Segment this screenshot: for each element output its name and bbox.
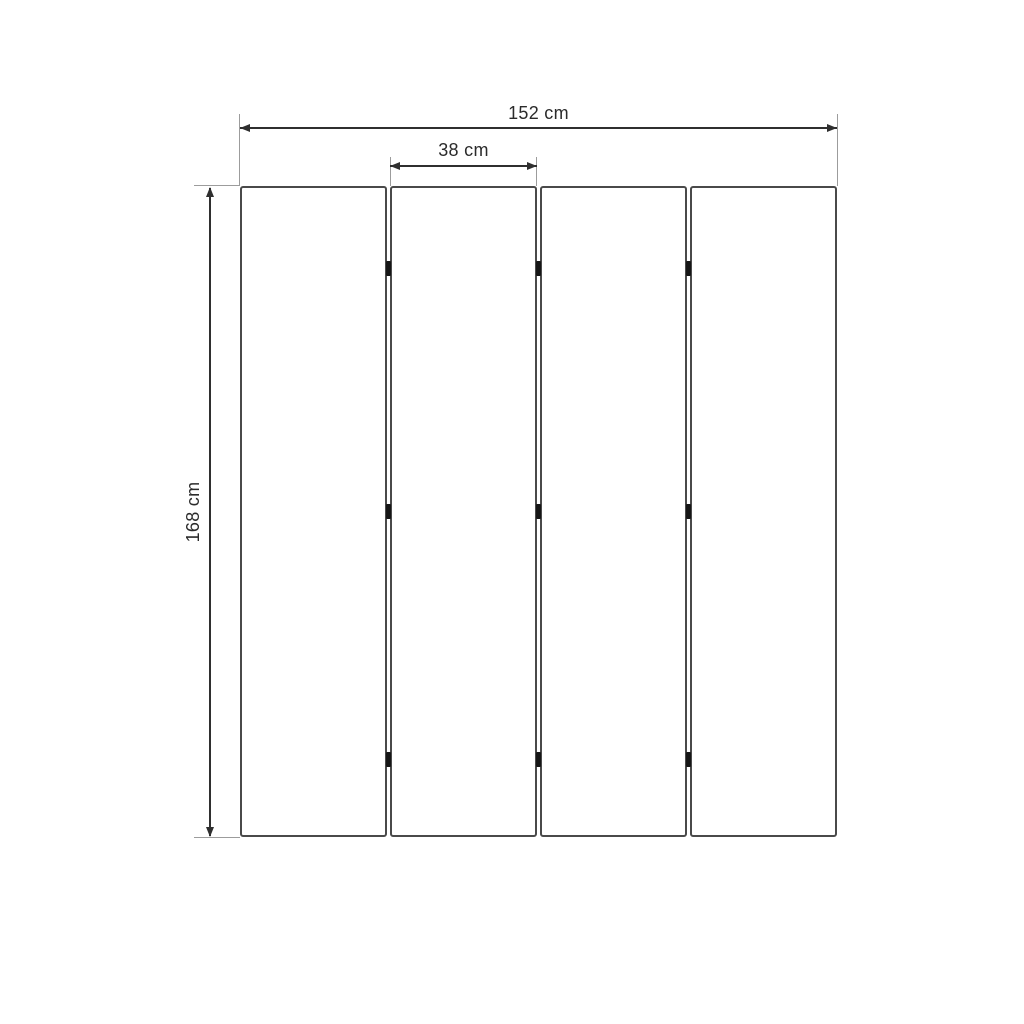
dimension-line-total-width <box>240 127 837 129</box>
hinge-joint3-bottom <box>686 752 691 767</box>
height-label: 168 cm <box>184 472 202 552</box>
hinge-joint3-middle <box>686 504 691 519</box>
hinge-joint3-top <box>686 261 691 276</box>
hinge-joint2-top <box>536 261 541 276</box>
dimension-line-height <box>209 188 211 836</box>
total-width-label: 152 cm <box>240 104 837 122</box>
extension-line-height-bottom <box>194 837 240 838</box>
hinge-joint2-middle <box>536 504 541 519</box>
hinge-joint2-bottom <box>536 752 541 767</box>
panel-width-label: 38 cm <box>390 141 537 159</box>
folding-screen-dimension-drawing: 152 cm 38 cm 168 cm <box>0 0 1024 1024</box>
hinge-joint1-bottom <box>386 752 391 767</box>
screen-panel-4 <box>690 186 837 837</box>
extension-line-height-top <box>194 185 240 186</box>
arrowhead-left-icon <box>390 162 400 170</box>
arrowhead-right-icon <box>527 162 537 170</box>
extension-line-total-width-right <box>837 114 838 186</box>
screen-panel-1 <box>240 186 387 837</box>
dimension-line-panel-width <box>390 165 537 167</box>
hinge-joint1-top <box>386 261 391 276</box>
hinge-joint1-middle <box>386 504 391 519</box>
screen-panel-2 <box>390 186 537 837</box>
arrowhead-left-icon <box>240 124 250 132</box>
screen-panel-3 <box>540 186 687 837</box>
arrowhead-right-icon <box>827 124 837 132</box>
arrowhead-up-icon <box>206 187 214 197</box>
arrowhead-down-icon <box>206 827 214 837</box>
